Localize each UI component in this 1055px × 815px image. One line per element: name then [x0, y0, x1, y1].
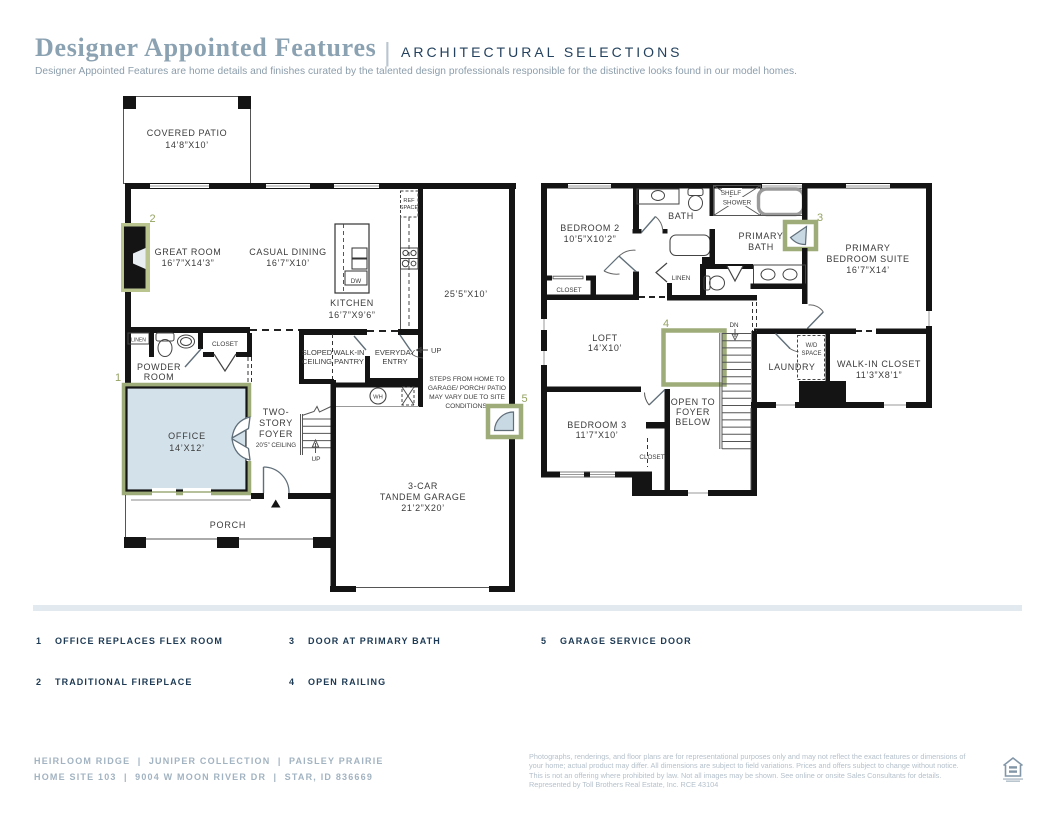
- svg-text:CLOSET: CLOSET: [639, 454, 664, 461]
- svg-text:PRIMARY: PRIMARY: [738, 231, 783, 241]
- svg-text:TWO-: TWO-: [263, 407, 289, 417]
- svg-text:BATH: BATH: [668, 211, 694, 221]
- svg-text:CLOSET: CLOSET: [212, 341, 238, 348]
- svg-text:14’8”X10’: 14’8”X10’: [165, 140, 208, 150]
- svg-text:TANDEM GARAGE: TANDEM GARAGE: [380, 492, 466, 502]
- svg-text:PANTRY: PANTRY: [334, 357, 364, 366]
- svg-text:CASUAL DINING: CASUAL DINING: [249, 247, 326, 257]
- svg-text:SHOWER: SHOWER: [723, 200, 752, 207]
- svg-text:FOYER: FOYER: [259, 429, 293, 439]
- svg-text:5: 5: [521, 393, 527, 405]
- svg-text:3: 3: [817, 212, 823, 224]
- svg-text:FOYER: FOYER: [676, 407, 710, 417]
- svg-text:GREAT ROOM: GREAT ROOM: [155, 247, 222, 257]
- svg-text:SHELF: SHELF: [721, 190, 741, 197]
- svg-text:KITCHEN: KITCHEN: [330, 298, 374, 308]
- svg-text:W/D: W/D: [806, 343, 818, 349]
- svg-text:SLOPED: SLOPED: [302, 348, 333, 357]
- svg-text:STORY: STORY: [259, 418, 293, 428]
- svg-text:20’5” CEILING: 20’5” CEILING: [256, 442, 296, 449]
- svg-text:CONDITIONS.: CONDITIONS.: [445, 403, 488, 410]
- svg-text:COVERED PATIO: COVERED PATIO: [147, 128, 227, 138]
- svg-text:WALK-IN: WALK-IN: [334, 348, 365, 357]
- svg-text:16’7”X14’3”: 16’7”X14’3”: [162, 258, 215, 268]
- svg-text:10’5”X10’2”: 10’5”X10’2”: [564, 234, 617, 244]
- svg-text:1: 1: [115, 372, 121, 384]
- svg-text:WH: WH: [373, 395, 383, 401]
- svg-text:SPACE: SPACE: [400, 205, 419, 211]
- svg-text:BEDROOM SUITE: BEDROOM SUITE: [826, 254, 909, 264]
- svg-text:GARAGE/ PORCH/ PATIO: GARAGE/ PORCH/ PATIO: [428, 385, 506, 392]
- svg-text:BEDROOM 3: BEDROOM 3: [567, 420, 626, 430]
- svg-text:OFFICE: OFFICE: [168, 431, 206, 441]
- svg-text:SPACE: SPACE: [802, 351, 822, 357]
- svg-text:3-CAR: 3-CAR: [408, 481, 438, 491]
- svg-text:16’7”X10’: 16’7”X10’: [266, 258, 309, 268]
- svg-text:14’X12’: 14’X12’: [169, 443, 205, 453]
- svg-text:STEPS FROM HOME TO: STEPS FROM HOME TO: [429, 376, 504, 383]
- svg-text:OPEN TO: OPEN TO: [671, 397, 715, 407]
- svg-text:2: 2: [149, 213, 155, 225]
- svg-text:BELOW: BELOW: [675, 417, 711, 427]
- svg-text:BATH: BATH: [748, 242, 774, 252]
- svg-text:14’X10’: 14’X10’: [588, 343, 622, 353]
- svg-text:11’3”X8’1”: 11’3”X8’1”: [856, 370, 902, 380]
- svg-text:25’5”X10’: 25’5”X10’: [444, 289, 487, 299]
- svg-text:PRIMARY: PRIMARY: [845, 243, 890, 253]
- svg-text:21’2”X20’: 21’2”X20’: [401, 503, 444, 513]
- svg-text:11’7”X10’: 11’7”X10’: [576, 430, 619, 440]
- svg-text:BEDROOM 2: BEDROOM 2: [560, 223, 619, 233]
- svg-text:WALK-IN CLOSET: WALK-IN CLOSET: [837, 359, 921, 369]
- svg-text:16’7”X9’6”: 16’7”X9’6”: [328, 310, 375, 320]
- svg-text:ENTRY: ENTRY: [382, 357, 407, 366]
- svg-text:16’7”X14’: 16’7”X14’: [846, 265, 889, 275]
- svg-text:UP: UP: [311, 456, 320, 463]
- svg-text:DN: DN: [729, 322, 739, 329]
- svg-text:DW: DW: [351, 278, 362, 285]
- svg-text:CLOSET: CLOSET: [556, 287, 581, 294]
- svg-text:MAY VARY DUE TO SITE: MAY VARY DUE TO SITE: [429, 394, 505, 401]
- svg-text:POWDER: POWDER: [137, 362, 181, 372]
- svg-text:LINEN: LINEN: [131, 338, 146, 344]
- svg-text:LINEN: LINEN: [672, 275, 691, 282]
- svg-text:PORCH: PORCH: [210, 520, 247, 530]
- svg-text:REF: REF: [403, 198, 415, 204]
- svg-text:CEILING: CEILING: [302, 357, 332, 366]
- svg-text:LAUNDRY: LAUNDRY: [768, 362, 815, 372]
- svg-text:UP: UP: [431, 346, 441, 355]
- svg-text:ROOM: ROOM: [144, 372, 174, 382]
- svg-text:LOFT: LOFT: [592, 333, 617, 343]
- svg-text:4: 4: [663, 318, 669, 330]
